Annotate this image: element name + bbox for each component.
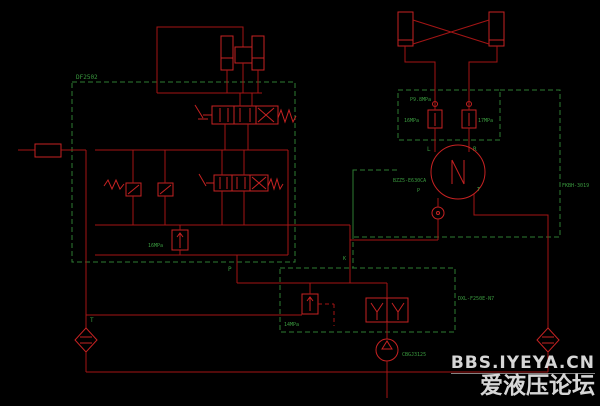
watermark: BBS.IYEYA.CN 爱液压论坛 — [451, 355, 595, 398]
spring-icon — [278, 110, 296, 122]
pilot-valve-label: DXL-F250E-N7 — [458, 296, 494, 302]
steering-valve-block: P9.8MPa 16MPa 17MPa L R — [404, 90, 493, 153]
pump-arrow-icon — [382, 341, 392, 349]
pilot-relief-valve-14mpa: 14MPa — [284, 283, 334, 328]
watermark-forum-name: 爱液压论坛 — [451, 373, 595, 398]
filter-icon — [75, 328, 97, 352]
main-relief-pressure-label: 16MPa — [148, 243, 163, 249]
schematic-drawing: DF2502 FKBH-3019 DXL-F250E-N7 — [0, 0, 600, 406]
lift-cylinder-assembly — [157, 27, 264, 93]
p-port-line: P — [228, 255, 387, 283]
spring-icon — [268, 179, 283, 189]
steering-unit-model-label: BZZ5-E630CA — [393, 178, 426, 184]
steering-p-label: P — [417, 188, 420, 194]
directional-valve-2 — [199, 150, 283, 225]
flow-amplifier-enclosure: FKBH-3019 — [353, 90, 589, 268]
main-relief-valve: 16MPa — [148, 225, 188, 255]
p-port-label: P — [228, 266, 232, 273]
check-v-icon — [392, 303, 404, 312]
t-port-label: T — [90, 317, 94, 324]
pilot-relief-valves — [104, 150, 173, 225]
directional-valve-1 — [195, 93, 296, 150]
steering-relief-right-label: 17MPa — [478, 118, 493, 124]
pump-model-label: CBGJ3125 — [402, 352, 426, 358]
main-valve-block-label: DF2502 — [76, 74, 98, 81]
main-valve-block-enclosure: DF2502 — [72, 74, 295, 262]
hydraulic-schematic-canvas: DF2502 FKBH-3019 DXL-F250E-N7 — [0, 0, 600, 406]
interconnect-lines: K — [288, 225, 438, 283]
solenoid-pilot-valve — [366, 283, 408, 339]
steering-block-pressure-label: P9.8MPa — [410, 97, 431, 103]
main-block-gallery-lines — [95, 150, 288, 255]
spring-icon — [104, 180, 124, 189]
l-port-label: L — [427, 146, 431, 153]
check-valve-icon — [432, 207, 444, 219]
filter-icon — [537, 328, 559, 352]
check-v-icon — [371, 303, 383, 312]
gear-pump: CBGJ3125 — [376, 339, 426, 398]
steering-cylinders — [398, 12, 504, 90]
flow-amplifier-label: FKBH-3019 — [562, 183, 589, 189]
hand-lever-icon — [199, 174, 214, 186]
steering-relief-left-label: 16MPa — [404, 118, 419, 124]
pilot-relief-pressure-label: 14MPa — [284, 322, 299, 328]
steering-t-label: T — [477, 187, 480, 193]
k-port-label: K — [343, 256, 346, 262]
hand-lever-icon — [195, 105, 212, 119]
inlet-port-left — [18, 144, 86, 157]
watermark-site: BBS.IYEYA.CN — [451, 355, 595, 373]
